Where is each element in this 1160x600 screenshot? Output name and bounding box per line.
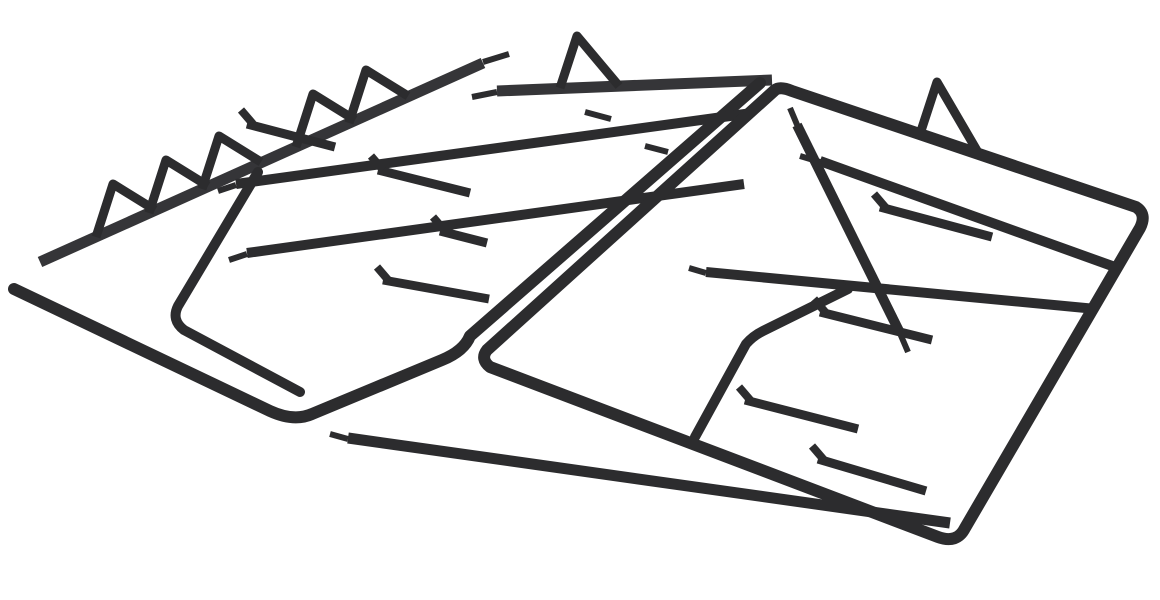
product-photo <box>0 0 1160 600</box>
grate-svg <box>0 0 1160 600</box>
